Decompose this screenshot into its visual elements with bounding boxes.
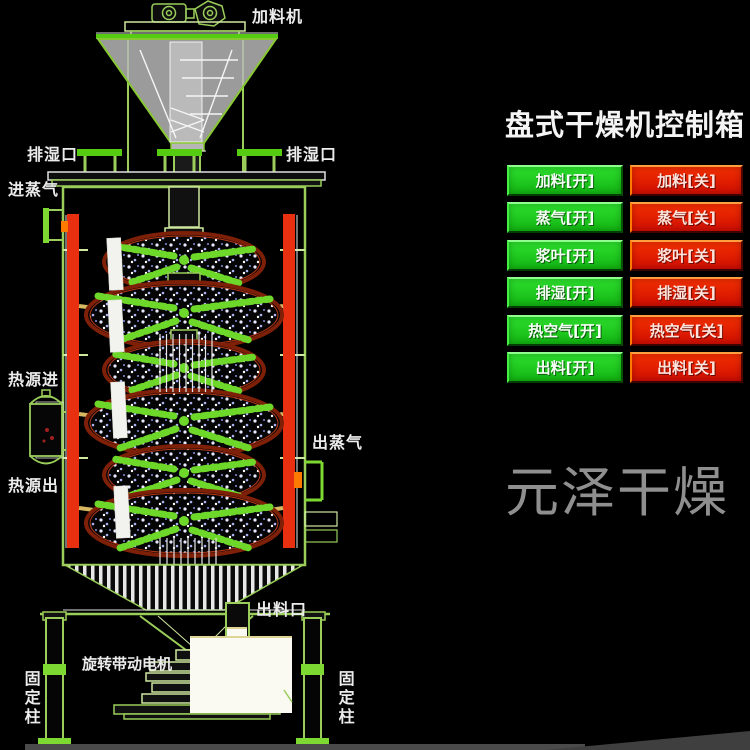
- label-heat-source-out: 热源出: [8, 477, 59, 495]
- label-heat-source-in: 热源进: [8, 371, 59, 389]
- steam-inlet-pipe: [43, 208, 63, 243]
- label-fixed-column-left: 固定柱: [22, 670, 40, 727]
- steam-outlet-pipe: [305, 462, 337, 542]
- screenshot-root: 加料机 排湿口 排湿口 进蒸气 热源进 出蒸气 热源出 出料口 旋转带动电机 固…: [0, 0, 750, 750]
- button-steam-off[interactable]: 蒸气[关]: [630, 202, 743, 233]
- button-feed-on[interactable]: 加料[开]: [507, 165, 623, 196]
- label-feeder: 加料机: [252, 8, 303, 26]
- top-plate: [48, 172, 325, 186]
- button-dehumidify-on[interactable]: 排湿[开]: [507, 277, 623, 308]
- watermark: 元泽干燥: [505, 448, 750, 527]
- heat-source-vessel: [30, 390, 66, 464]
- label-steam-outlet: 出蒸气: [312, 434, 363, 452]
- label-fixed-column-right: 固定柱: [336, 670, 354, 727]
- button-paddle-on[interactable]: 浆叶[开]: [507, 240, 623, 271]
- button-feed-off[interactable]: 加料[关]: [630, 165, 743, 196]
- button-dehumidify-off[interactable]: 排湿[关]: [630, 277, 743, 308]
- button-hot-air-on[interactable]: 热空气[开]: [507, 315, 623, 346]
- label-moisture-outlet-left: 排湿口: [27, 146, 78, 164]
- button-discharge-off[interactable]: 出料[关]: [630, 352, 743, 383]
- label-moisture-outlet-right: 排湿口: [286, 146, 337, 164]
- feeder-motor: [125, 1, 245, 36]
- floor-strip: [25, 731, 750, 750]
- motor-cover-box: [190, 627, 292, 713]
- label-drive-motor: 旋转带动电机: [82, 656, 172, 673]
- button-steam-on[interactable]: 蒸气[开]: [507, 202, 623, 233]
- label-steam-inlet: 进蒸气: [8, 181, 59, 199]
- panel-title: 盘式干燥机控制箱: [500, 102, 750, 144]
- button-hot-air-off[interactable]: 热空气[关]: [630, 315, 743, 346]
- button-paddle-off[interactable]: 浆叶[关]: [630, 240, 743, 271]
- button-discharge-on[interactable]: 出料[开]: [507, 352, 623, 383]
- label-discharge-outlet: 出料口: [256, 601, 307, 619]
